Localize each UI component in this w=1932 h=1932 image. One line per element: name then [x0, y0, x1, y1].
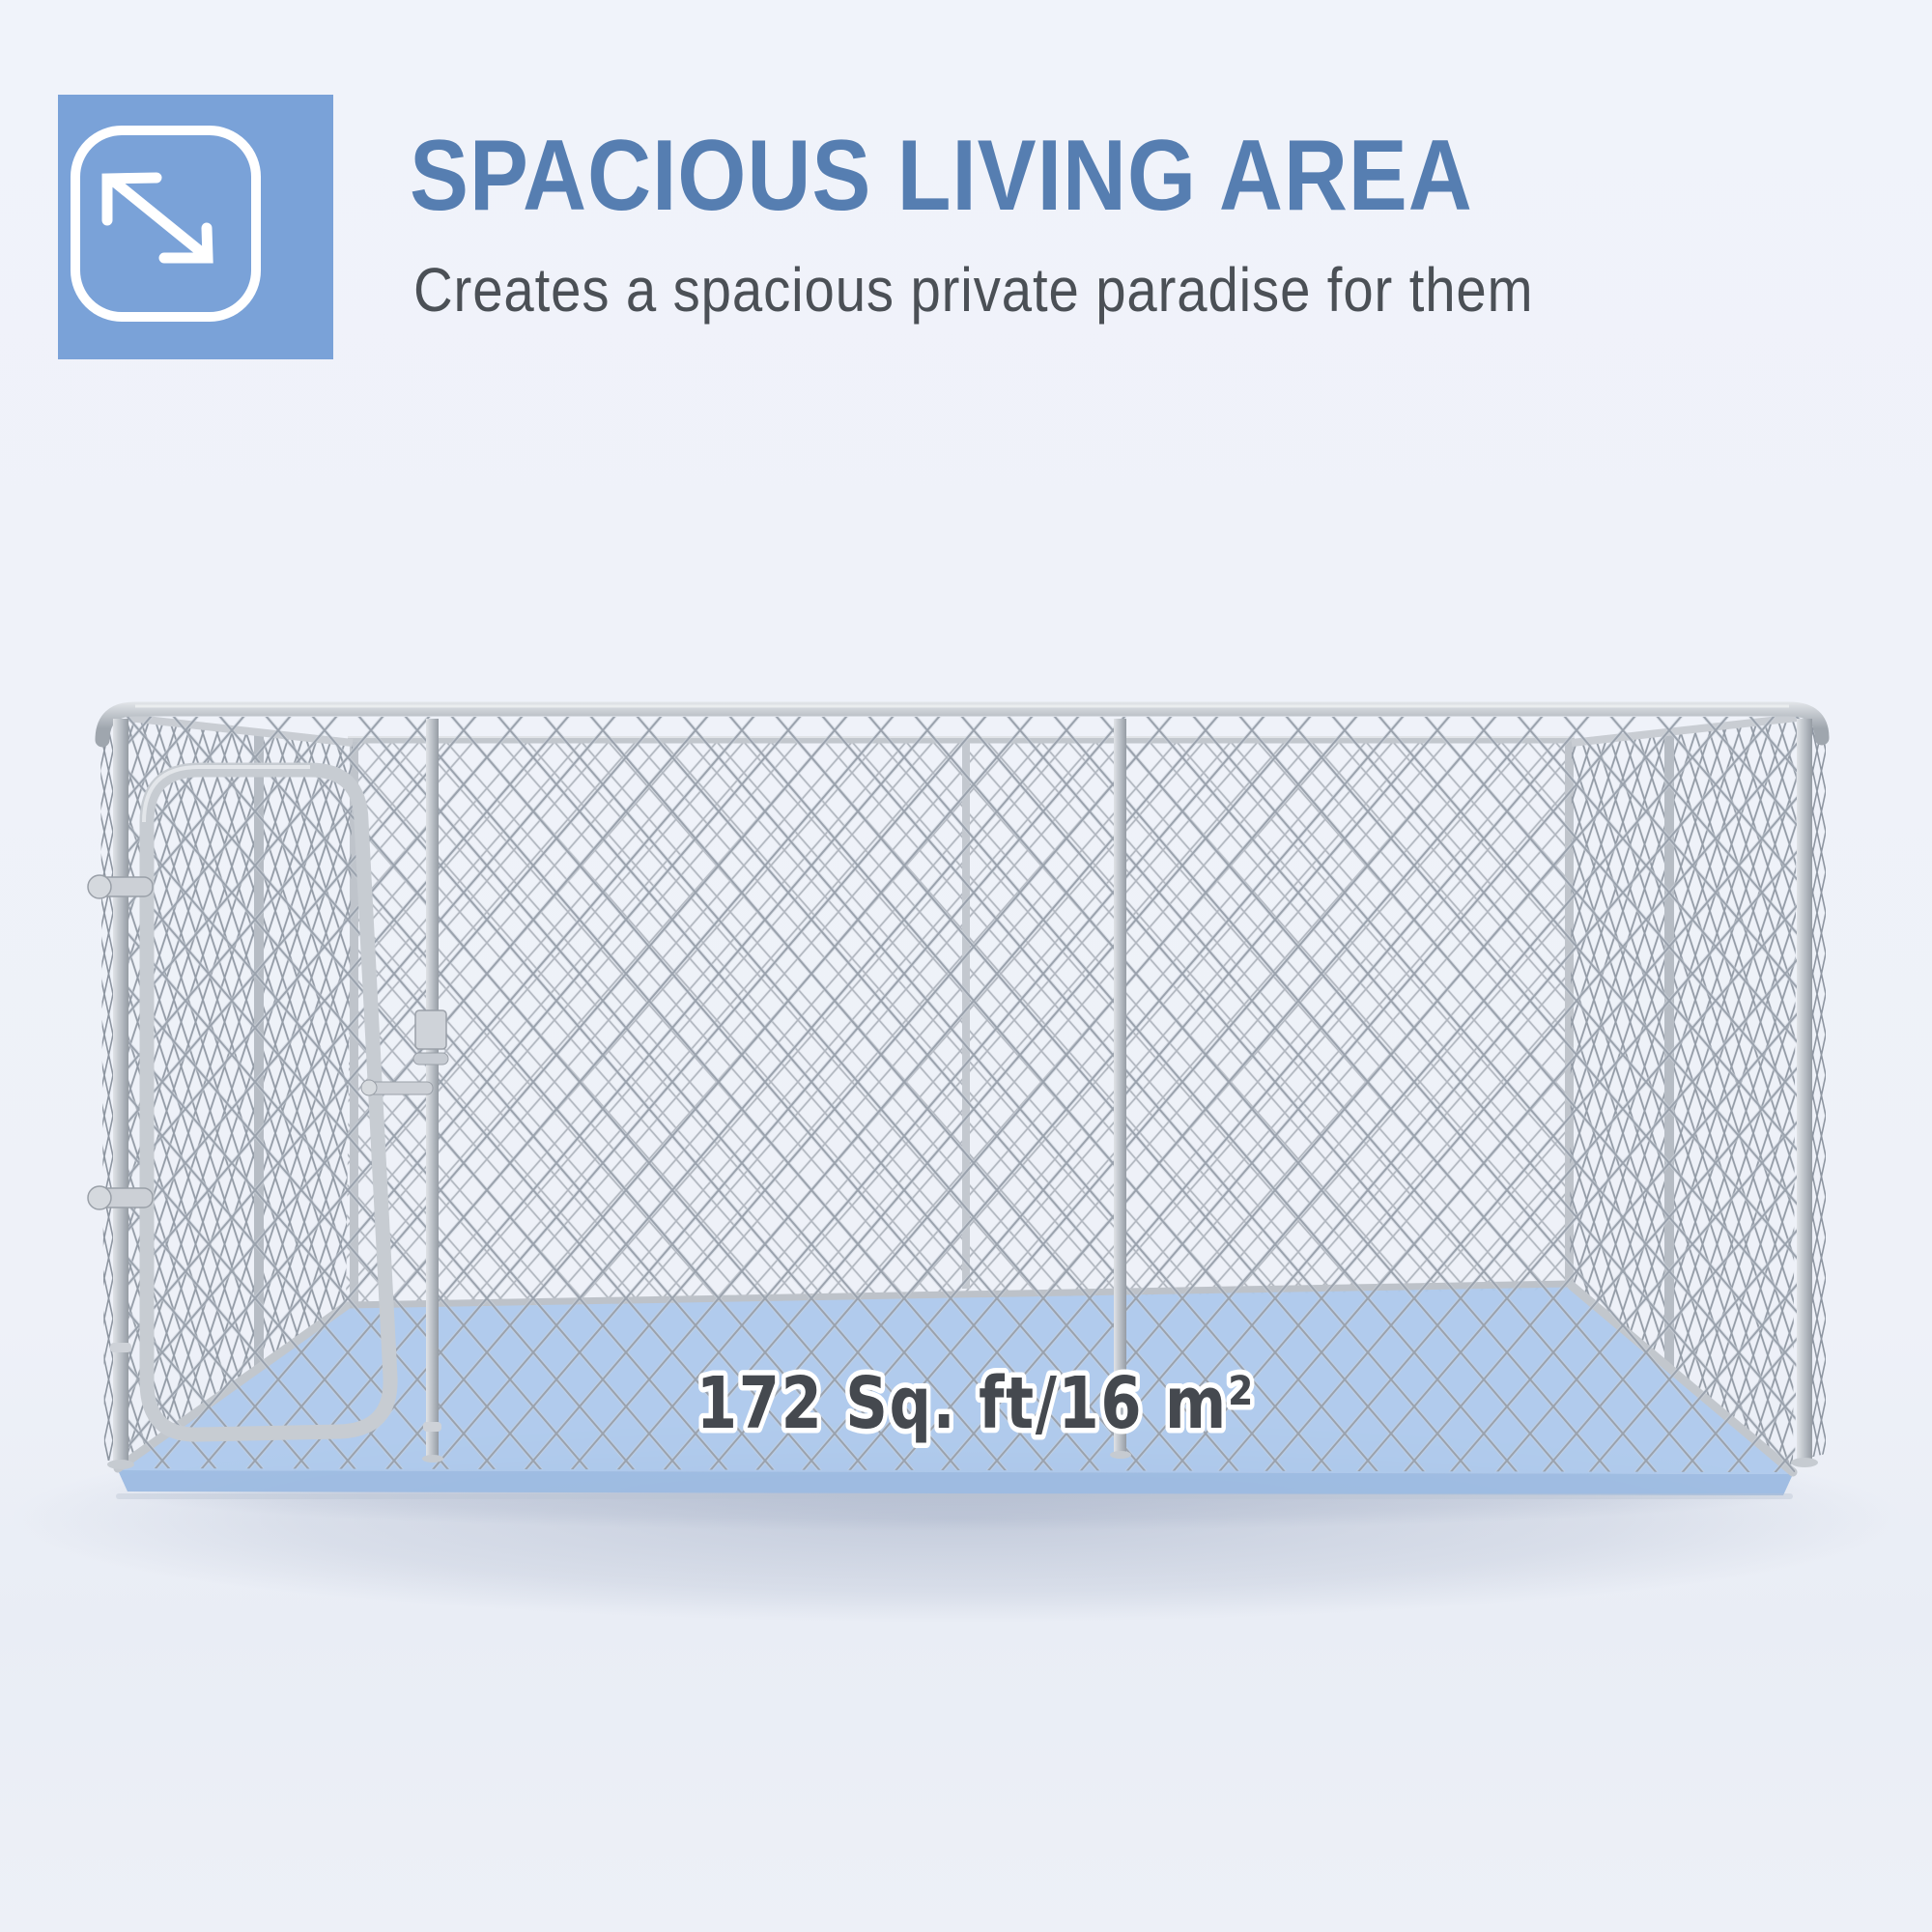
corner-post-right: [1797, 719, 1812, 1461]
area-label: 172 Sq. ft/16 m²: [696, 1361, 1255, 1444]
mid-post-right: [1114, 719, 1126, 1453]
product-feature-card: SPACIOUS LIVING AREA Creates a spacious …: [0, 0, 1932, 1932]
door-hinge-top: [88, 875, 153, 898]
floor-front-lip: [118, 1470, 1793, 1495]
door-hinge-bottom: [88, 1186, 153, 1209]
kennel-figure: 172 Sq. ft/16 m²: [0, 0, 1932, 1932]
